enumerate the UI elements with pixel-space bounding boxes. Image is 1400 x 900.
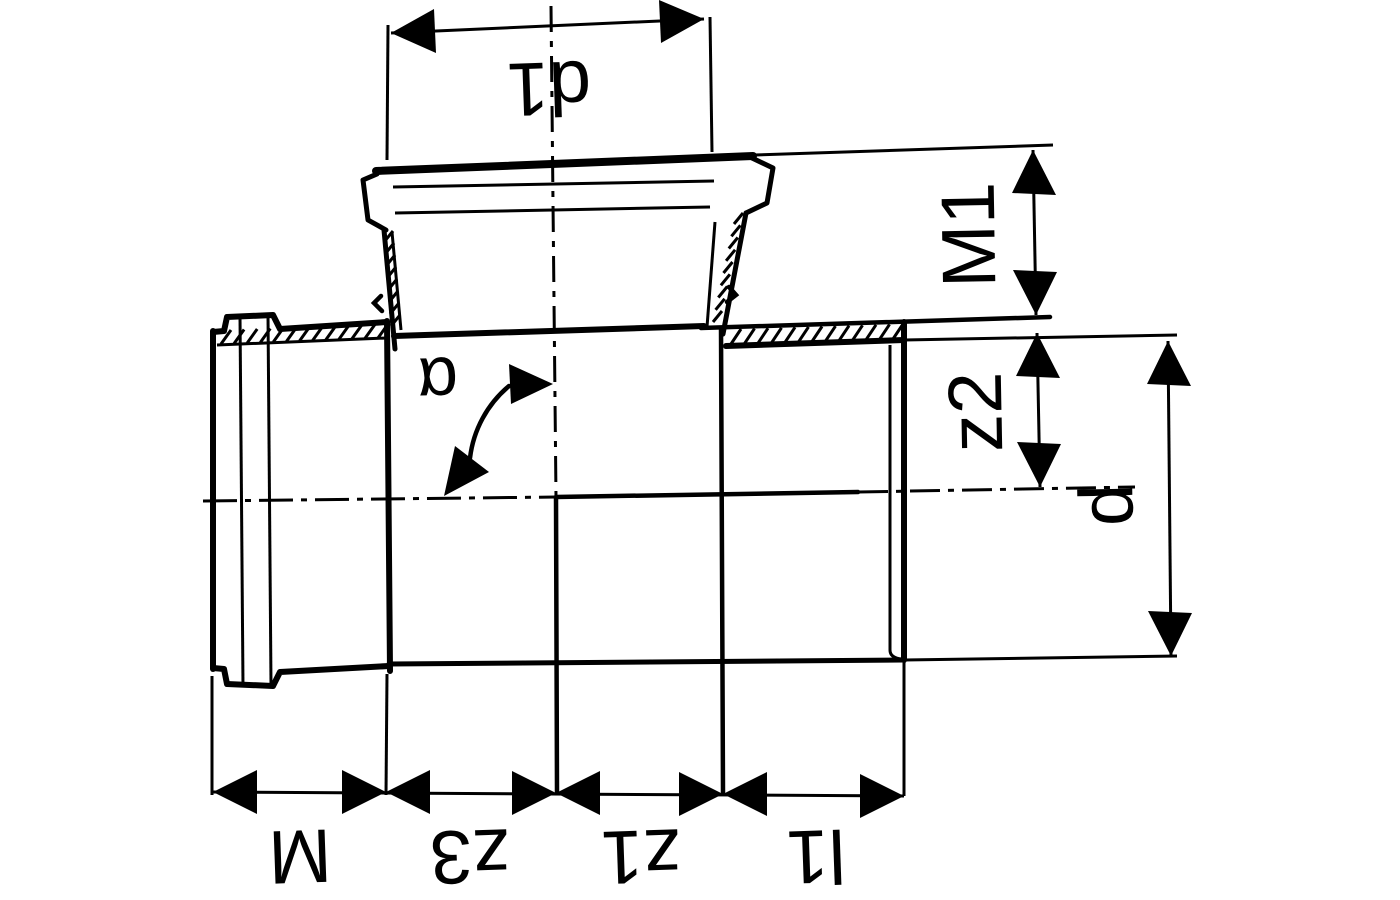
d1-dimension-line — [391, 19, 704, 33]
M1-arrowhead-bottom — [1013, 270, 1057, 315]
main-axis-centerline — [203, 497, 556, 501]
dim-label-M1: M1 — [926, 181, 1013, 288]
hatch-tick — [745, 329, 755, 344]
saddle-line — [394, 326, 704, 336]
hatch-tick — [866, 325, 876, 340]
main-axis-solid-segment — [556, 492, 858, 497]
hatch-tick — [839, 326, 849, 341]
dim-label-M: M — [267, 812, 333, 899]
branch-wall-right-inner — [707, 222, 715, 327]
chain-arrowhead-left-end — [213, 770, 257, 814]
z2-arrowhead-top — [1016, 333, 1060, 378]
pipe-fitting-drawing: d1 M1 z2 d α — [0, 0, 1400, 900]
dim-M1: M1 — [754, 145, 1057, 315]
fitting-body — [213, 156, 1177, 686]
d-arrowhead-bottom — [1148, 611, 1192, 656]
right-wall-inner-line — [726, 340, 904, 346]
hatch-tick — [880, 324, 890, 339]
chain-arrowhead-right-end — [860, 774, 904, 818]
chain-extension-2 — [386, 674, 387, 795]
branch-mouth-edge — [376, 156, 753, 171]
dim-label-z1: z1 — [599, 812, 682, 900]
pipe-bottom-edge — [389, 660, 904, 664]
hatch-tick — [826, 326, 836, 341]
dim-label-alpha: α — [416, 342, 459, 421]
chain-arrowhead-tick3-b — [723, 772, 767, 816]
alpha-arc — [470, 386, 509, 458]
alpha-arrowhead-upper — [509, 364, 553, 404]
hatch-tick — [721, 274, 730, 285]
socket-groove-line-left — [240, 316, 243, 686]
hatch-tick — [365, 325, 375, 339]
M1-arrowhead-top — [1012, 150, 1056, 195]
d1-arrowhead-left — [391, 9, 436, 53]
socket-groove-line-right — [268, 315, 271, 685]
hatch-tick — [716, 299, 725, 310]
chain-extension-3 — [556, 497, 557, 793]
d1-arrowhead-right — [659, 0, 704, 43]
hatch-tick — [713, 311, 722, 322]
pipe-bottom-extension — [904, 656, 1177, 660]
dim-alpha: α — [416, 342, 553, 496]
socket-bottom-outline — [213, 666, 389, 686]
dim-label-d: d — [1064, 483, 1150, 527]
d-arrowhead-top — [1147, 341, 1191, 386]
dim-chain-bottom: M z3 z1 l1 — [212, 328, 904, 900]
alpha-arrowhead-lower — [444, 446, 489, 496]
dim-label-z3: z3 — [428, 812, 511, 900]
hatch-tick — [247, 329, 257, 343]
hatch-tick — [772, 328, 782, 343]
socket-end-face — [387, 321, 390, 671]
hatch-tick — [734, 213, 743, 224]
chain-arrowhead-tick2-b — [556, 771, 600, 815]
hatch-tick — [724, 262, 733, 273]
chain-arrowhead-tick1-a — [342, 770, 386, 814]
d1-extension-left — [387, 25, 388, 160]
chain-extension-4 — [721, 328, 723, 793]
branch-notch-left — [374, 296, 382, 311]
dim-d: d — [1064, 341, 1192, 656]
chain-arrowhead-tick3-a — [679, 772, 723, 816]
dim-label-d1: d1 — [505, 44, 592, 132]
drawing-canvas: d1 M1 z2 d α — [0, 0, 1400, 900]
hatch-tick — [812, 327, 822, 342]
dim-label-l1: l1 — [785, 812, 847, 899]
hatch-tick — [853, 325, 863, 340]
pipe-end-inner-edge — [890, 345, 902, 659]
hatch-tick — [785, 327, 795, 342]
branch-bead-right — [746, 158, 773, 213]
right-wall-inner-extension — [904, 335, 1177, 340]
dimensions: d1 M1 z2 d α — [212, 0, 1192, 900]
d-dimension-line — [1168, 341, 1171, 656]
chain-arrowhead-tick2-a — [512, 771, 556, 815]
branch-bead-left — [363, 174, 386, 230]
hatch-tick — [799, 327, 809, 342]
dim-d1: d1 — [387, 0, 712, 160]
dim-label-z2: z2 — [933, 371, 1019, 453]
d1-extension-right — [710, 17, 712, 152]
hatch-tick — [718, 287, 727, 298]
hatch-tick — [726, 250, 735, 261]
chain-arrowhead-tick1-b — [386, 770, 430, 814]
hatch-tick — [731, 225, 740, 236]
hatch-tick — [729, 238, 738, 249]
dim-z2: z2 — [933, 333, 1061, 487]
hatch-tick — [731, 329, 741, 344]
hatch-tick — [758, 328, 768, 343]
z2-arrowhead-bottom — [1017, 442, 1061, 487]
M1-reference-top — [754, 145, 1053, 155]
